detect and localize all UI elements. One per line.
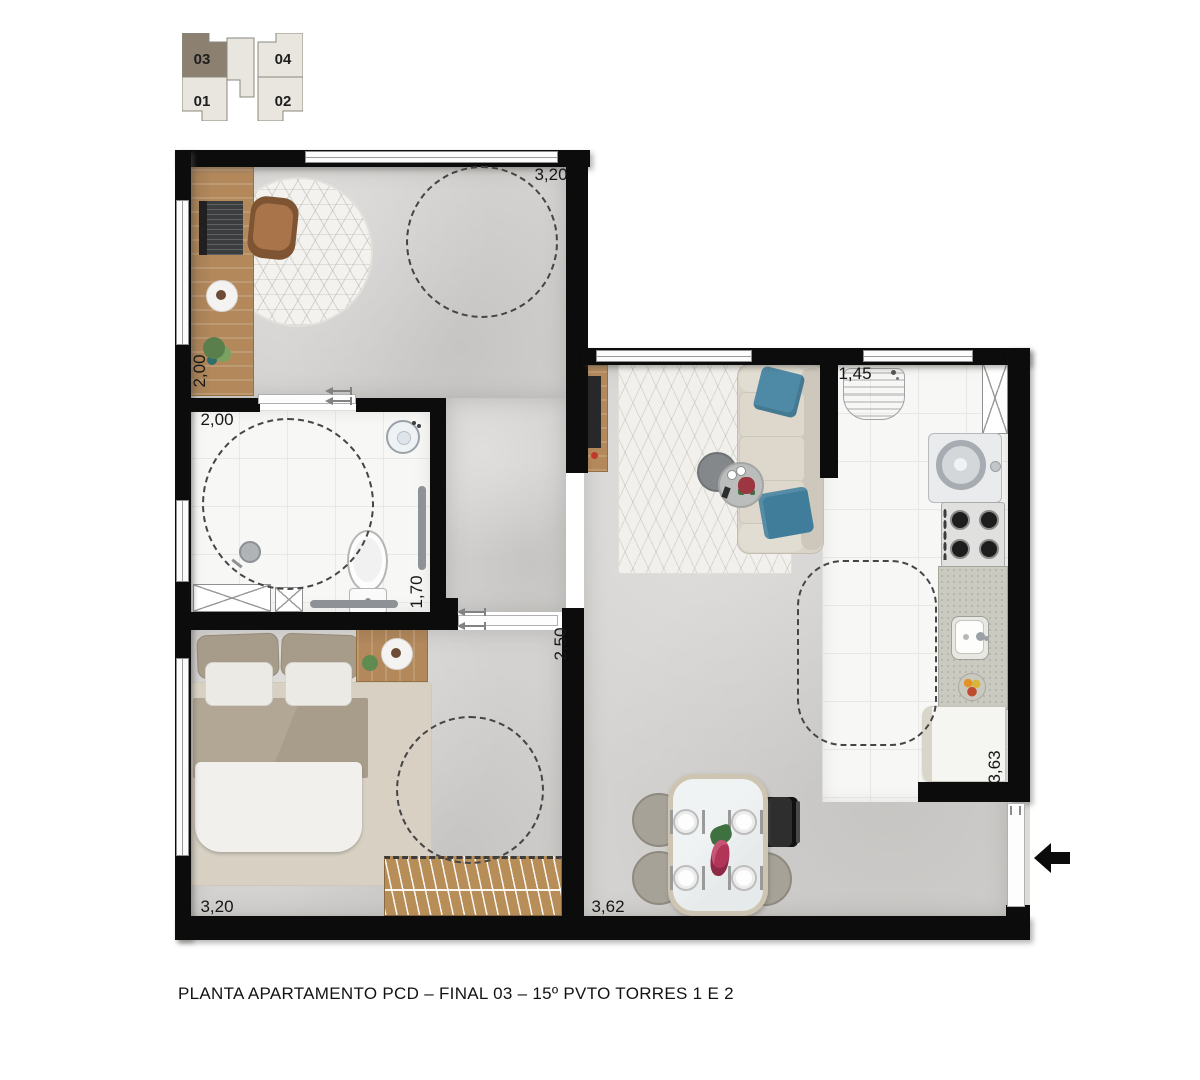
sink-drain <box>963 634 969 640</box>
wall-bottom-exterior <box>175 916 1030 940</box>
bed-duvet <box>195 762 362 852</box>
wall-kitchen-bottom <box>918 782 1030 802</box>
laptop-keyboard <box>207 201 243 255</box>
dimension-laundry-width: 1,45 <box>838 364 871 384</box>
bathroom-sliding-door <box>258 394 356 404</box>
grab-bar-horizontal <box>310 600 398 608</box>
coffee-cup <box>736 466 746 476</box>
nightstand-cup <box>391 648 401 658</box>
key-plan-label-01: 01 <box>194 93 211 110</box>
turning-area-kitchen <box>797 560 937 746</box>
office-chair-seat <box>252 202 295 252</box>
entry-door-frame-mark <box>1019 806 1021 815</box>
key-plan: 03 04 01 02 <box>182 33 303 121</box>
bedroom-door-arrow <box>464 611 486 613</box>
bed-pillow-front-left <box>205 662 273 706</box>
stove-knobs <box>943 508 947 560</box>
entry-arrow-icon <box>1034 839 1070 877</box>
sofa-pillow-blue-bottom <box>757 486 814 540</box>
wardrobe <box>384 856 562 916</box>
key-plan-label-03: 03 <box>194 51 211 68</box>
living-window <box>596 350 752 362</box>
kitchen-window <box>863 350 973 362</box>
table-flowers <box>738 477 755 494</box>
dimension-kitchen-depth: 3,63 <box>985 750 1005 783</box>
bathroom-door-arrow <box>332 390 352 392</box>
wall-bedroom-top <box>175 612 458 630</box>
hallway-floor <box>446 398 566 612</box>
stove-burner <box>950 539 970 559</box>
floor-plan-page: 03 04 01 02 <box>0 0 1200 1080</box>
wall-office-right <box>566 150 588 473</box>
office-window-top <box>305 151 558 163</box>
bedroom-door-arrow <box>464 625 486 627</box>
dimension-bedroom-depth: 2,50 <box>551 627 571 660</box>
laptop-icon <box>199 201 207 255</box>
wall-right-exterior <box>1008 348 1030 802</box>
wall-laundry-divider <box>820 360 838 478</box>
office-window-left <box>176 200 189 345</box>
entry-door-frame-mark <box>1010 806 1012 815</box>
bedroom-window <box>176 658 189 856</box>
fruit-bowl <box>958 673 986 701</box>
bed-pillow-front-right <box>285 662 352 706</box>
dimension-bathroom-width: 2,00 <box>200 410 233 430</box>
sink-faucet <box>976 632 985 641</box>
shower-drain-box <box>275 587 303 612</box>
turning-radius-bedroom <box>396 716 544 864</box>
cutlery <box>702 866 705 890</box>
wall-bathroom-right <box>430 398 446 603</box>
turning-radius-office <box>406 166 558 318</box>
kitchen-shaft <box>982 362 1008 434</box>
nightstand-plant <box>362 655 378 671</box>
stove-burner <box>979 510 999 530</box>
turning-radius-bathroom <box>202 418 374 590</box>
bathroom-door-arrow <box>332 400 352 402</box>
washbasin-drain <box>397 431 411 445</box>
key-plan-label-02: 02 <box>275 93 292 110</box>
laundry-faucet <box>891 370 896 375</box>
bathroom-window <box>176 500 189 582</box>
dimension-bathroom-depth: 1,70 <box>407 575 427 608</box>
plan-caption: PLANTA APARTAMENTO PCD – FINAL 03 – 15º … <box>178 984 734 1004</box>
washbasin-faucet <box>412 421 416 425</box>
washer-hub <box>954 458 967 471</box>
desk-cup <box>216 290 226 300</box>
cutlery <box>702 810 705 834</box>
place-setting <box>673 865 699 891</box>
grab-bar-vertical <box>418 486 426 570</box>
console-decor <box>591 452 598 459</box>
place-setting <box>673 809 699 835</box>
dimension-bedroom-width: 3,20 <box>200 897 233 917</box>
key-plan-label-04: 04 <box>275 51 292 68</box>
shower-box <box>193 584 271 612</box>
entry-door <box>1007 803 1025 907</box>
place-setting <box>731 865 757 891</box>
tv-icon <box>588 376 601 448</box>
dimension-office-width: 3,20 <box>534 165 567 185</box>
wheelchair-handles <box>796 801 800 843</box>
dimension-living-width: 3,62 <box>591 897 624 917</box>
key-plan-core-shape <box>227 38 254 97</box>
washer-knob <box>990 461 1001 472</box>
place-setting <box>731 809 757 835</box>
stove-burner <box>979 539 999 559</box>
stove-burner <box>950 510 970 530</box>
dimension-office-depth: 2,00 <box>190 354 210 387</box>
